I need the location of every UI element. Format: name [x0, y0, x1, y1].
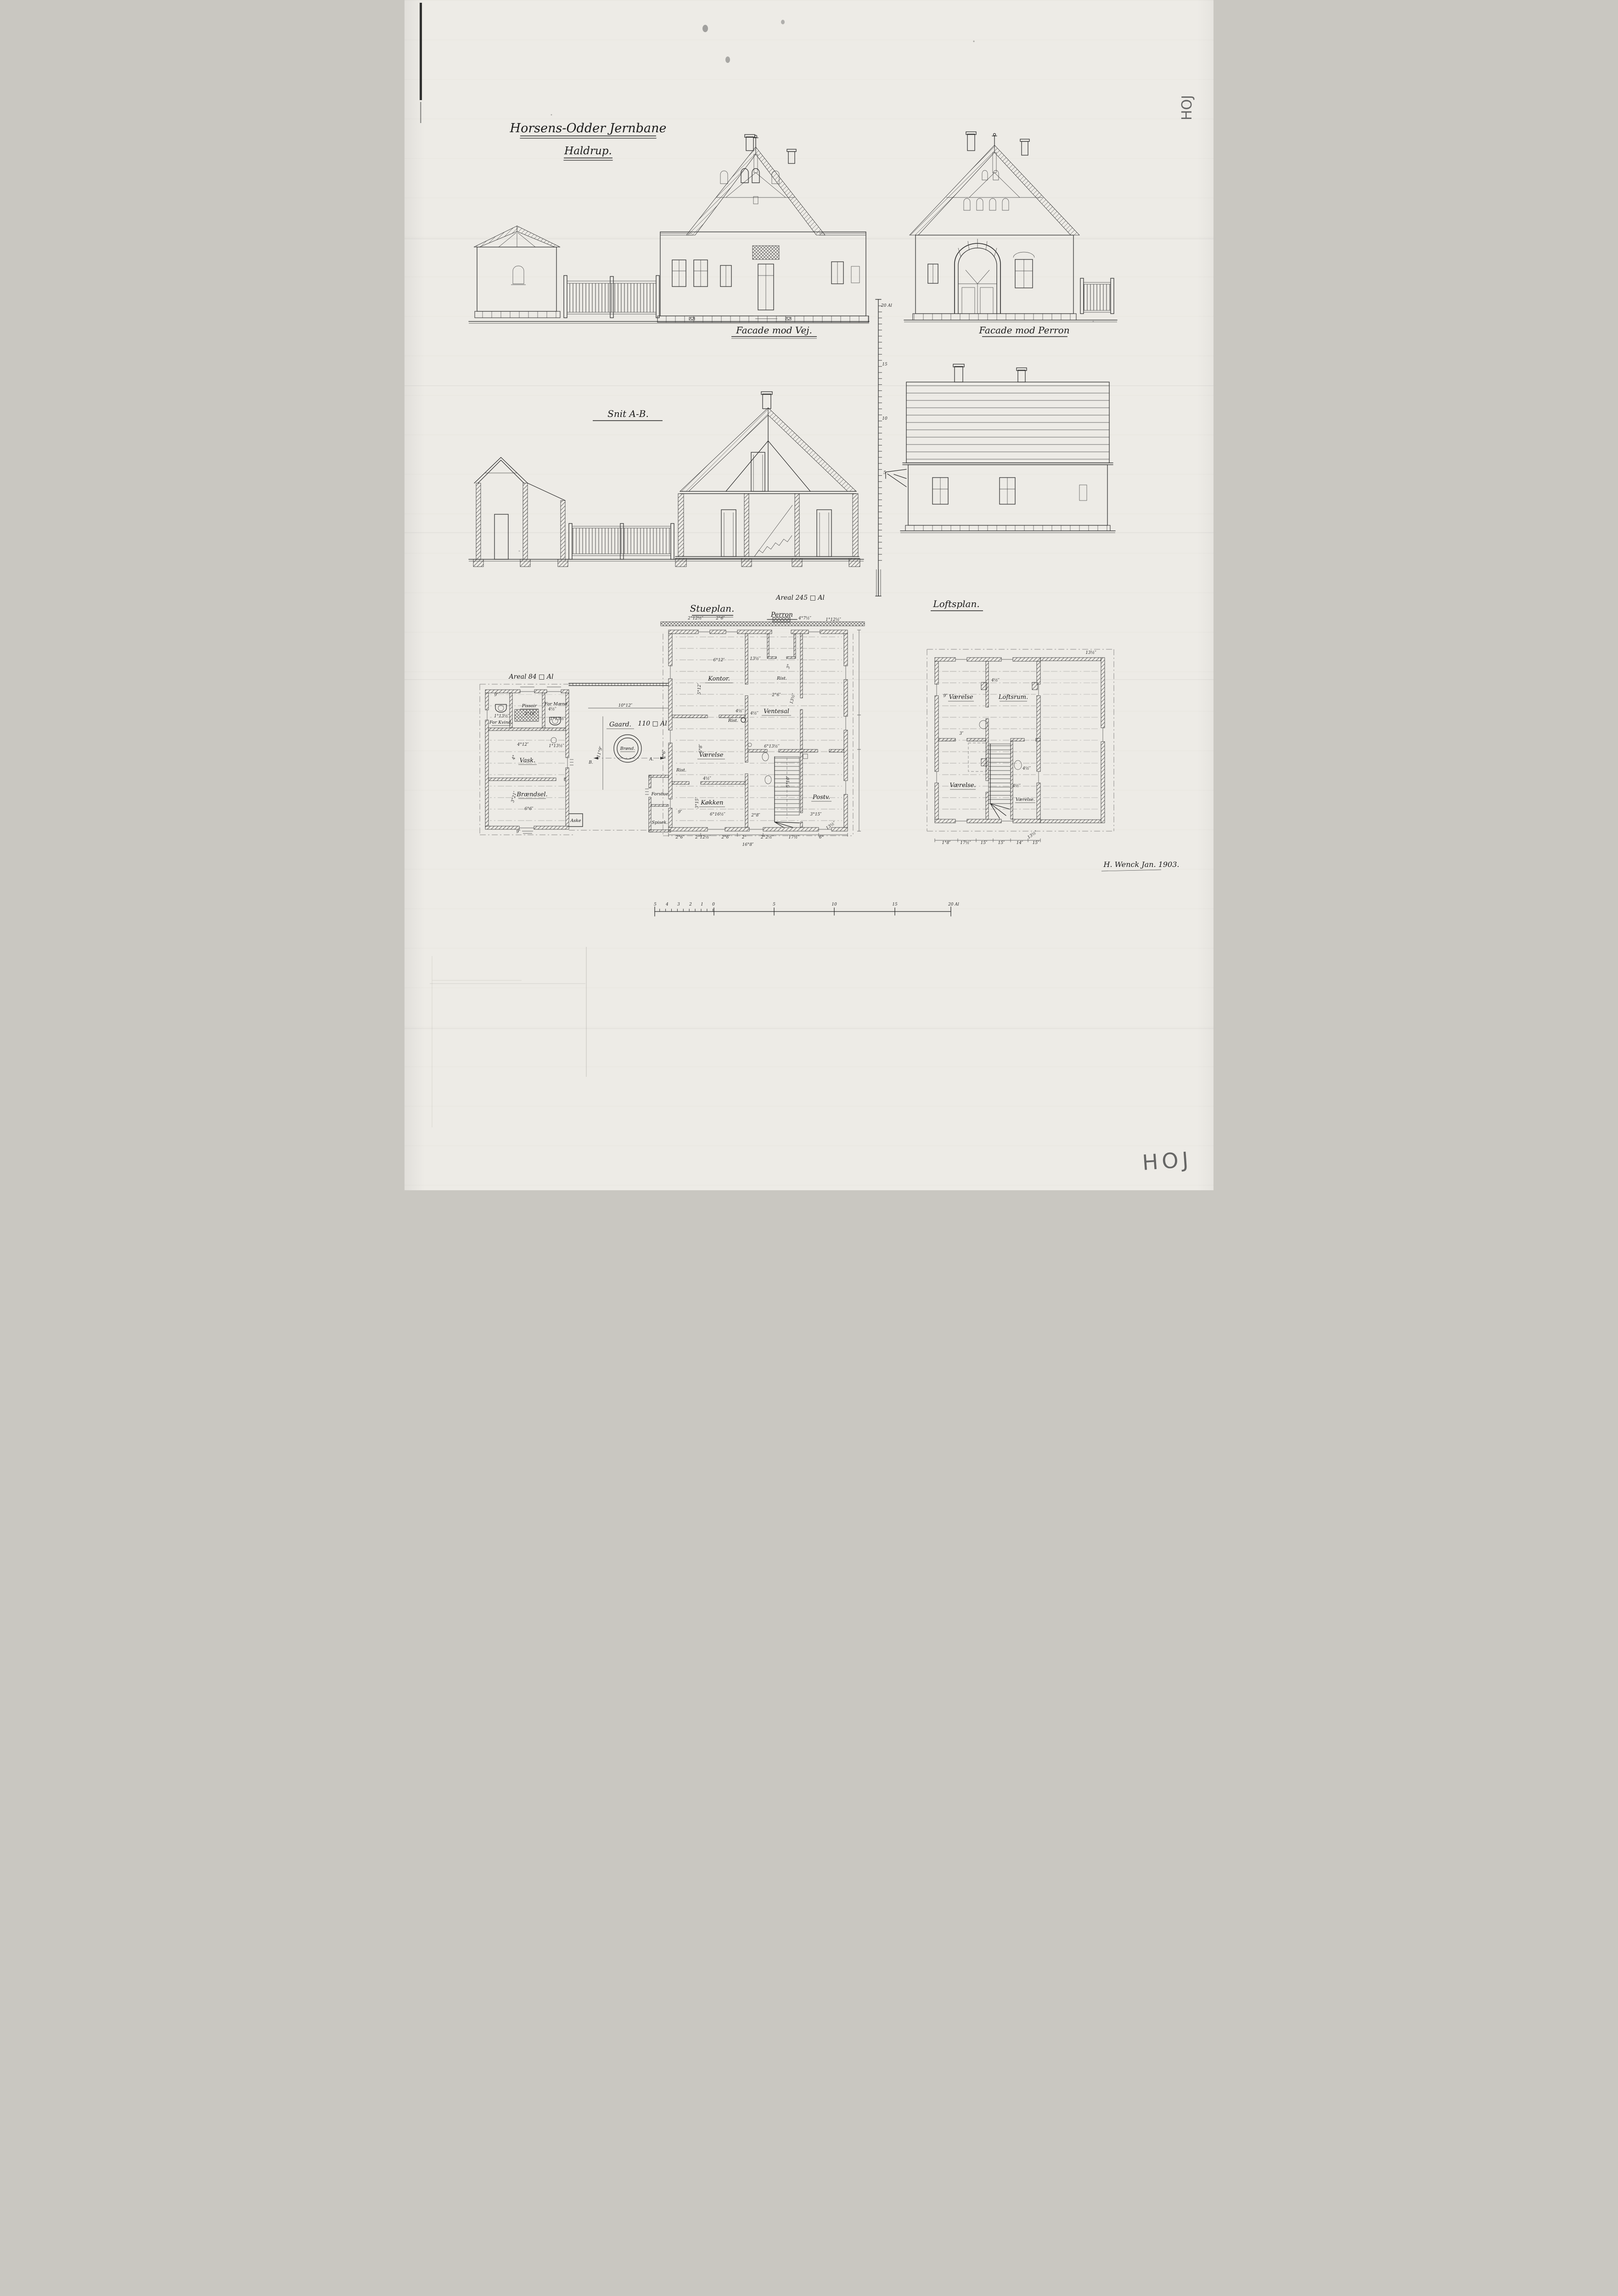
annotation-4: 1: [701, 902, 703, 907]
annotation-48: 1°13½″: [550, 716, 566, 721]
annotation-68: 15″: [998, 841, 1005, 845]
section-snit-ab: Snit A-B.: [469, 392, 864, 567]
annotation-70: 15″: [1033, 841, 1039, 845]
marker-a: A.: [649, 757, 653, 762]
room-kontor: Kontor.: [708, 675, 730, 682]
annotation-39: 2°6″: [721, 835, 730, 840]
annotation-60: 4½″: [991, 678, 1000, 683]
room-vaerelse-se: Værelse.: [1016, 797, 1035, 802]
annotation-54: 9″: [516, 830, 521, 834]
room-vask: Vask.: [520, 757, 536, 764]
label-rist-3: Rist.: [676, 768, 686, 773]
title-block: Horsens-Odder Jernbane Haldrup.: [510, 121, 667, 160]
annotation-65: 1°8″: [942, 841, 951, 845]
caption-snit: Snit A-B.: [607, 408, 649, 419]
annotation-38: 2°12½″: [695, 835, 711, 840]
annotation-18: 6°12″: [713, 658, 725, 663]
room-spisek: Spisek.: [652, 820, 668, 825]
annotation-59: 9″: [943, 694, 948, 698]
signature: H. Wenck Jan. 1903.: [1103, 860, 1179, 869]
annotation-36: 16°8″: [742, 843, 754, 847]
annotation-16: 4°7½″: [798, 616, 812, 621]
annotation-22: 2°6″: [771, 693, 781, 698]
annotation-45: 1°13½″: [494, 714, 510, 719]
plan-loftsplan: Værelse Loftsrum. Værelse. Værelse.: [927, 649, 1114, 842]
annotation-50: 1°13½″: [549, 743, 564, 748]
corner-mark-top-right: HOJ: [1179, 95, 1195, 120]
annotation-3: 2: [689, 902, 692, 907]
drawing-subtitle: Haldrup.: [564, 145, 612, 157]
annotation-25: 4½″: [750, 711, 758, 716]
room-for-maend: For Mænd: [544, 702, 567, 707]
label-broend: Brønd.: [620, 746, 635, 751]
annotation-32: 2°8″: [751, 813, 760, 818]
annotation-53: 6°6″: [524, 807, 534, 811]
annotation-17: 1°12½″: [826, 617, 841, 622]
corner-mark-bottom-right: HOJ: [1141, 1147, 1193, 1175]
annotation-43: 6°: [819, 835, 824, 840]
room-vaerelse-nw: Værelse: [949, 694, 973, 701]
annotation-11: 15: [882, 362, 888, 367]
annotation-55: 10°12″: [618, 703, 633, 708]
annotation-66: 17½″: [960, 840, 971, 845]
annotation-1: 4: [665, 902, 669, 907]
room-postv: Postv.: [812, 794, 830, 801]
annotation-19: 5°12″: [697, 683, 702, 695]
caption-loftsplan: Loftsplan.: [933, 598, 979, 609]
drawing-canvas: Horsens-Odder Jernbane Haldrup.: [404, 0, 1213, 1190]
room-koekken: Køkken: [700, 799, 723, 806]
annotation-9: 20 Al: [948, 902, 959, 907]
drawing-sheet: Horsens-Odder Jernbane Haldrup.: [404, 0, 1213, 1190]
annotation-0: 5: [654, 902, 657, 907]
room-pissoir: Pissoir: [522, 703, 538, 709]
annotation-37: 2°6″: [675, 835, 685, 840]
annotation-2: 3: [677, 902, 680, 907]
annotation-61: 3″: [959, 732, 964, 736]
annotation-63: 4½″: [1012, 783, 1021, 788]
annotation-30: 6°16½″: [710, 812, 725, 817]
elevation-facade-perron: Facade mod Perron: [904, 132, 1117, 337]
annotation-46: 2°18″: [524, 712, 536, 716]
elevation-roof-side: [886, 364, 1115, 533]
annotation-29: 3°15″: [695, 797, 700, 809]
label-gaard: Gaard.: [609, 721, 631, 728]
room-braendsel: Brændsel.: [516, 791, 547, 798]
annotation-47: 4½″: [548, 707, 556, 712]
scale-bar: [655, 907, 951, 916]
annotation-49: 4°12″: [517, 743, 529, 747]
annotation-69: 14″: [1017, 841, 1023, 845]
annotation-33: 5°10″: [786, 776, 791, 788]
caption-facade-vej: Facade mod Vej.: [736, 325, 812, 336]
label-areal-84: Areal 84 □ Al: [508, 673, 554, 681]
annotation-20: 13½″: [750, 656, 761, 661]
annotation-44: 9″: [494, 693, 499, 698]
annotation-28: 4½″: [702, 776, 711, 781]
annotation-31: 9″: [678, 810, 682, 815]
plan-stueplan: Kontor. Ventesal Værelse Køkken Postv. F…: [645, 617, 865, 837]
marker-b: B.: [588, 760, 593, 765]
elevation-facade-vej: Facade mod Vej.: [469, 135, 869, 338]
annotation-8: 15: [892, 902, 898, 907]
annotation-6: 5: [773, 902, 775, 907]
room-aske: Aske: [570, 818, 581, 823]
annotation-34: 3°15″: [810, 812, 822, 817]
annotation-14: 2°12½″: [687, 616, 703, 621]
label-rist-1: Rist.: [776, 676, 787, 681]
room-forstue: Forstue: [651, 792, 669, 797]
annotation-7: 10: [831, 902, 837, 907]
label-gaard-area: 110 □ Al: [638, 720, 667, 727]
annotation-62: 4½″: [1022, 766, 1031, 771]
signature-block: H. Wenck Jan. 1903.: [1101, 860, 1180, 871]
annotation-10: 20 Al: [881, 304, 892, 308]
room-for-kvinder: For Kvind.: [489, 720, 512, 725]
label-areal-245: Areal 245 □ Al: [775, 594, 825, 602]
room-vaerelse-sw: Værelse.: [950, 782, 976, 789]
annotation-13: 5: [883, 471, 886, 475]
annotation-42: 17½″: [788, 835, 799, 840]
annotation-12: 10: [882, 416, 888, 421]
measuring-rod: [875, 299, 882, 596]
caption-stueplan: Stueplan.: [690, 603, 735, 614]
plan-outbuilding: For Kvind. Pissoir For Mænd Vask. Brænds…: [480, 684, 583, 835]
annotation-58: 13½″: [1085, 650, 1096, 655]
annotation-5: 0: [712, 902, 715, 907]
annotation-40: 2°: [742, 835, 747, 840]
caption-facade-perron: Facade mod Perron: [978, 325, 1069, 336]
annotation-24: 4½″: [735, 709, 744, 714]
annotation-67: 15″: [981, 841, 988, 845]
annotation-41: 2°2½″: [760, 835, 774, 840]
room-loftsrum: Loftsrum.: [998, 694, 1028, 701]
room-ventesal: Ventesal: [764, 708, 789, 715]
annotation-27: 5°8″: [699, 744, 703, 753]
label-rist-2: Rist.: [728, 718, 738, 723]
annotation-57: 2°6″: [662, 749, 667, 759]
annotation-15: 2°6″: [715, 616, 725, 621]
drawing-title: Horsens-Odder Jernbane: [510, 121, 667, 135]
annotation-26: 6°13½″: [764, 744, 780, 749]
